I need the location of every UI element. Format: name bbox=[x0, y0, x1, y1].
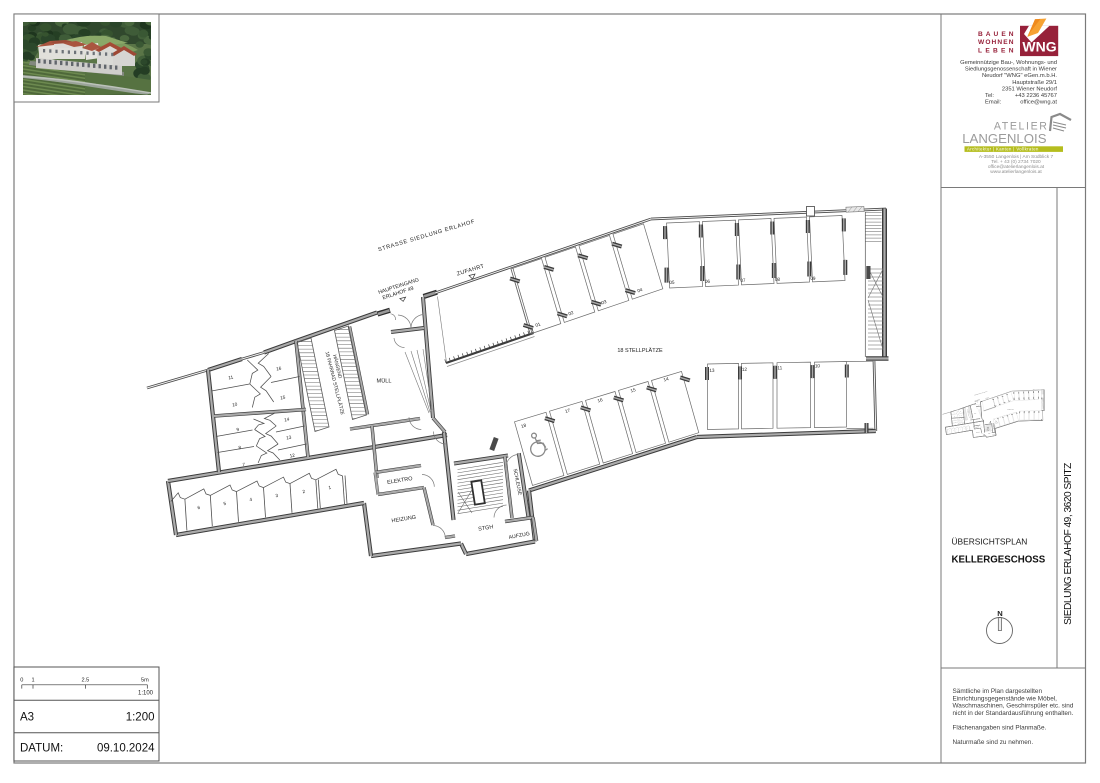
svg-text:1: 1 bbox=[32, 678, 35, 684]
svg-text:Tel:: Tel: bbox=[985, 93, 994, 99]
svg-text:Hauptstraße 29/1: Hauptstraße 29/1 bbox=[1012, 80, 1057, 86]
svg-text:11: 11 bbox=[777, 365, 782, 370]
svg-text:Neudorf "WNG" eGen.m.b.H.: Neudorf "WNG" eGen.m.b.H. bbox=[982, 73, 1057, 79]
svg-text:N: N bbox=[997, 609, 1002, 618]
svg-text:06: 06 bbox=[705, 279, 711, 284]
svg-text:WOHNEN: WOHNEN bbox=[978, 39, 1014, 46]
svg-text:13: 13 bbox=[709, 368, 715, 373]
svg-text:0: 0 bbox=[20, 678, 23, 684]
svg-text:2.5: 2.5 bbox=[82, 678, 90, 684]
svg-text:ÜBERSICHTSPLAN: ÜBERSICHTSPLAN bbox=[952, 537, 1028, 547]
svg-text:Siedlungsgenossenschaft in Wie: Siedlungsgenossenschaft in Wiener bbox=[965, 67, 1057, 73]
svg-text:Sämtliche im Plan dargestellte: Sämtliche im Plan dargestellten bbox=[953, 688, 1043, 695]
svg-text:08: 08 bbox=[775, 277, 781, 282]
svg-text:1:200: 1:200 bbox=[126, 712, 155, 724]
svg-text:05: 05 bbox=[669, 280, 675, 285]
svg-text:09: 09 bbox=[810, 276, 816, 281]
svg-text:MÜLL: MÜLL bbox=[377, 378, 392, 385]
svg-text:Flächenangaben sind Planmaße.: Flächenangaben sind Planmaße. bbox=[953, 725, 1047, 732]
svg-text:www.atelierlangenlois.at: www.atelierlangenlois.at bbox=[990, 169, 1042, 175]
svg-text:Naturmaße sind zu nehmen.: Naturmaße sind zu nehmen. bbox=[953, 739, 1034, 746]
svg-text:SIEDLUNG ERLAHOF 49, 3620 SPIT: SIEDLUNG ERLAHOF 49, 3620 SPITZ bbox=[1063, 463, 1074, 625]
svg-text:office@wng.at: office@wng.at bbox=[1020, 100, 1057, 106]
svg-text:A3: A3 bbox=[20, 712, 34, 724]
svg-text:LANGENLOIS: LANGENLOIS bbox=[962, 131, 1046, 146]
svg-text:Gemeinnützige Bau-, Wohnungs-: Gemeinnützige Bau-, Wohnungs- und bbox=[960, 60, 1057, 66]
svg-text:18 STELLPLÄTZE: 18 STELLPLÄTZE bbox=[617, 347, 663, 354]
svg-text:Einrichtungsgegenstände wie Mö: Einrichtungsgegenstände wie Möbel, bbox=[953, 695, 1058, 702]
svg-text:07: 07 bbox=[740, 278, 746, 283]
svg-text:+43 2236 45767: +43 2236 45767 bbox=[1015, 93, 1057, 99]
svg-text:10: 10 bbox=[815, 363, 821, 368]
svg-text:2351 Wiener Neudorf: 2351 Wiener Neudorf bbox=[1002, 86, 1057, 92]
svg-text:09.10.2024: 09.10.2024 bbox=[97, 743, 155, 755]
svg-text:nicht in der Standardausführun: nicht in der Standardausführung enthalte… bbox=[953, 710, 1074, 717]
svg-text:12: 12 bbox=[742, 367, 748, 372]
svg-text:Email:: Email: bbox=[985, 100, 1001, 106]
svg-text:WNG: WNG bbox=[1022, 39, 1056, 55]
svg-text:1:100: 1:100 bbox=[138, 691, 154, 697]
svg-text:5m: 5m bbox=[141, 678, 149, 684]
svg-text:DATUM:: DATUM: bbox=[20, 743, 63, 755]
svg-text:Waschmaschinen, Geschirrspüler: Waschmaschinen, Geschirrspüler etc. sind bbox=[953, 703, 1074, 710]
svg-text:KELLERGESCHOSS: KELLERGESCHOSS bbox=[952, 555, 1046, 566]
svg-text:Architektur | Kanten | Vol: Architektur | Kanten | Vollkraten bbox=[967, 147, 1039, 152]
